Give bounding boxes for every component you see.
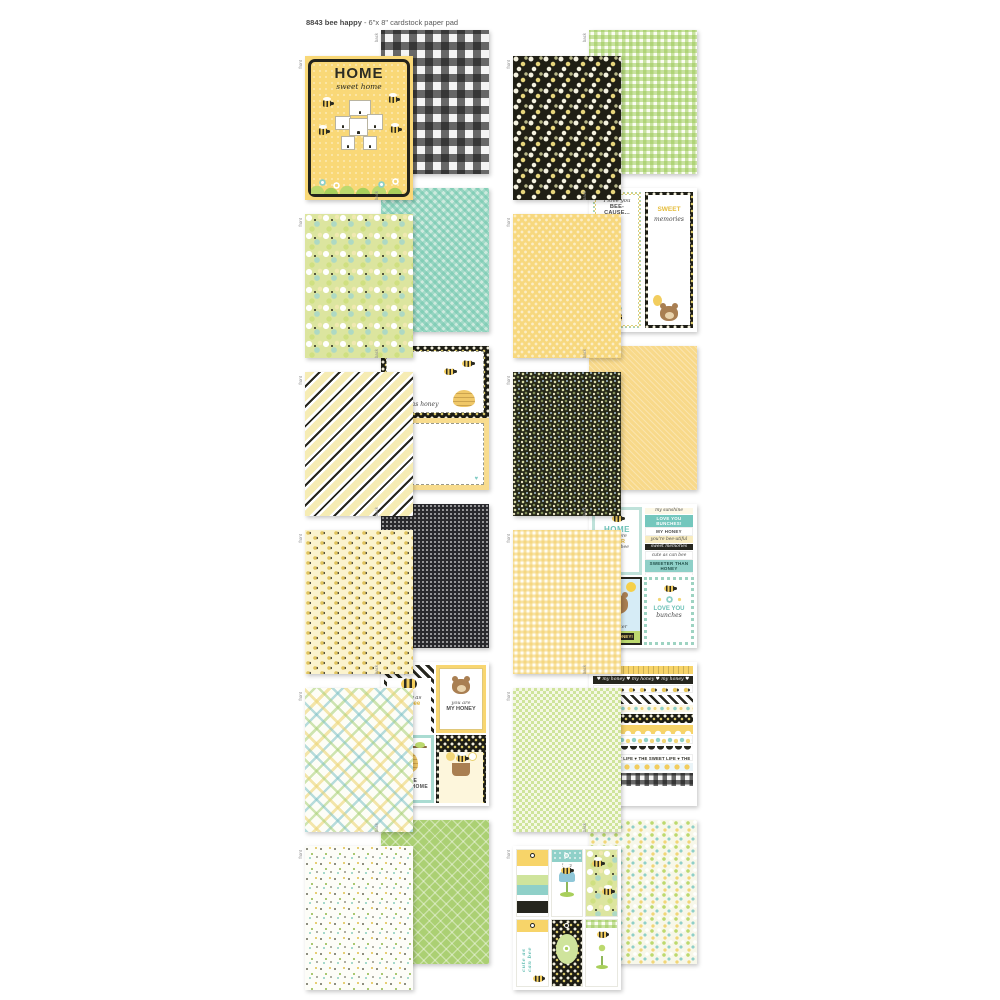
front-label: front (299, 376, 303, 385)
paper-front-diagonal-plaid (305, 688, 413, 832)
home-subtitle: sweet home (311, 82, 407, 91)
birdhouse-icon (367, 114, 383, 130)
leaves-icon (596, 965, 608, 969)
product-code-and-name: 8843 bee happy (306, 18, 362, 27)
paper-front-yellow-gingham (513, 530, 621, 674)
tag-text-vertical: cute as can bee (521, 935, 533, 972)
back-label: back (375, 33, 379, 42)
card-flower-basket (436, 735, 486, 803)
bee-icon (597, 931, 608, 938)
paper-pair-6: back front (513, 346, 697, 518)
honey-pot-icon (452, 763, 470, 776)
bear-character (440, 669, 482, 694)
page-title: 8843 bee happy - 6"x 8" cardstock paper … (306, 18, 458, 27)
paper-pair-10: back ♥ my honey ♥ my honey ♥ my honey ♥ … (513, 662, 697, 834)
paper-front-honeycomb (513, 214, 621, 358)
bee-house-scene (319, 98, 399, 153)
stem-icon (601, 956, 603, 965)
paper-front-micro-floral (513, 372, 621, 516)
tag-hole (530, 853, 535, 858)
front-label: front (299, 692, 303, 701)
bee-icon (389, 126, 400, 133)
tag-daisy-oval (551, 919, 584, 987)
flower-icon (392, 178, 399, 185)
sun-icon (626, 582, 636, 592)
paper-front-bee-blossoms (305, 214, 413, 358)
paper-pair-5: back sweet as honey (305, 346, 489, 518)
stem-icon (566, 882, 568, 892)
word-strip: MY HONEY (645, 527, 693, 536)
back-label: back (375, 191, 379, 200)
panel-text: bunches (647, 612, 691, 619)
back-label: back (375, 823, 379, 832)
front-label: front (507, 692, 511, 701)
back-label: back (375, 507, 379, 516)
leaves-icon (415, 742, 425, 748)
birdhouse-icon (341, 136, 355, 150)
bee-icon (561, 867, 572, 874)
bee-icon (612, 515, 623, 522)
paper-pair-1: back front HOME sweet home (305, 30, 489, 202)
word-strip: SWEETER THAN HONEY (645, 560, 693, 572)
paper-pair-7: back front (305, 504, 489, 676)
flower-icon (333, 182, 340, 189)
back-label: back (583, 665, 587, 674)
front-label: front (507, 534, 511, 543)
journal-card-sweet-memories: SWEET memories (645, 192, 693, 328)
oval-frame (556, 934, 578, 964)
leaves-icon (560, 892, 574, 897)
strip-my-honey: ♥ my honey ♥ my honey ♥ my honey ♥ (593, 676, 693, 684)
bee-icon (602, 888, 613, 895)
birdhouse-icon (363, 136, 377, 150)
product-description: - 6"x 8" cardstock paper pad (362, 18, 458, 27)
word-strip: cute as can bee (645, 551, 693, 560)
tag-hole (564, 923, 569, 928)
home-sweet-home-card: HOME sweet home (308, 59, 410, 197)
front-label: front (507, 60, 511, 69)
paper-pair-12: back front bzzz (513, 820, 697, 992)
card-text: SWEET (657, 206, 680, 213)
bee-icon (456, 755, 467, 762)
back-label: back (375, 349, 379, 358)
paper-front-home-sweet-home: HOME sweet home (305, 56, 413, 200)
word-strip: LOVE YOU BUNCHES! (645, 515, 693, 527)
paper-pair-2: back front (513, 30, 697, 202)
home-title: HOME (311, 66, 407, 81)
card-text: memories (650, 216, 688, 223)
daisy-icon (563, 945, 570, 952)
flower-icon (378, 181, 385, 188)
paper-front-tiny-bees (305, 530, 413, 674)
bee-icon (387, 96, 398, 103)
tag-cute-as-can-bee: cute as can bee (516, 919, 549, 987)
tag-hole (564, 853, 569, 858)
flower-icon (319, 179, 326, 186)
front-label: front (299, 60, 303, 69)
panel-love-you-bunches: LOVE YOU bunches (644, 577, 694, 645)
card-you-are-my-honey: you are MY HONEY (436, 665, 486, 733)
word-strip: THE SWEET LIFE (645, 572, 693, 575)
front-label: front (507, 850, 511, 859)
tag-bzzz-tulip: bzzz (551, 849, 584, 917)
tag-daisy-bee-panel (585, 919, 618, 987)
tulip-flower-icon (559, 870, 575, 882)
paper-front-tags: bzzz cute as can bee (513, 846, 621, 990)
heart-icon: ♥ (474, 476, 478, 482)
back-label: back (583, 823, 587, 832)
paper-pair-8: back HOME is where YOUR honey bee my sun… (513, 504, 697, 676)
paper-front-green-check-dot (513, 688, 621, 832)
paper-front-daisy-floral (513, 56, 621, 200)
front-label: front (299, 850, 303, 859)
bee-icon (592, 860, 603, 867)
tag-floral-panel (585, 849, 618, 917)
tag-striped (516, 849, 549, 917)
word-strip: my sunshine (645, 508, 693, 515)
product-collage: 8843 bee happy - 6"x 8" cardstock paper … (0, 0, 1000, 1000)
back-label: back (583, 349, 587, 358)
bee-icon (321, 100, 332, 107)
tag-hole (530, 923, 535, 928)
paper-front-confetti-dots (305, 846, 413, 990)
front-label: front (507, 376, 511, 385)
paper-pair-3: back front (305, 188, 489, 360)
bee-icon (317, 128, 328, 135)
paper-front-diagonal-stripe (305, 372, 413, 516)
beehive-icon (453, 390, 475, 407)
word-strip: you're bee-utiful (645, 536, 693, 543)
bear-character (660, 306, 678, 321)
paper-pair-11: back front (305, 820, 489, 992)
bee-icon (462, 360, 473, 367)
daisy-icon (594, 940, 610, 956)
paper-pair-4: back I love you BEE-CAUSE... SWEET (513, 188, 697, 360)
back-label: back (375, 665, 379, 674)
word-strip: sweet memories (645, 544, 693, 551)
birdhouse-icon (349, 118, 368, 136)
flowers-decoration (647, 596, 691, 603)
front-label: front (299, 534, 303, 543)
bee-icon (444, 368, 455, 375)
back-label: back (583, 191, 587, 200)
gingham-band (586, 920, 617, 928)
front-label: front (299, 218, 303, 227)
bee-icon (664, 585, 675, 592)
back-label: back (583, 33, 587, 42)
card-text: MY HONEY (440, 706, 482, 712)
back-label: back (583, 507, 587, 516)
paper-pair-9: back happy as can bee you are (305, 662, 489, 834)
front-label: front (507, 218, 511, 227)
bee-icon (533, 975, 544, 982)
panel-word-strips: my sunshine LOVE YOU BUNCHES! MY HONEY y… (644, 507, 694, 575)
